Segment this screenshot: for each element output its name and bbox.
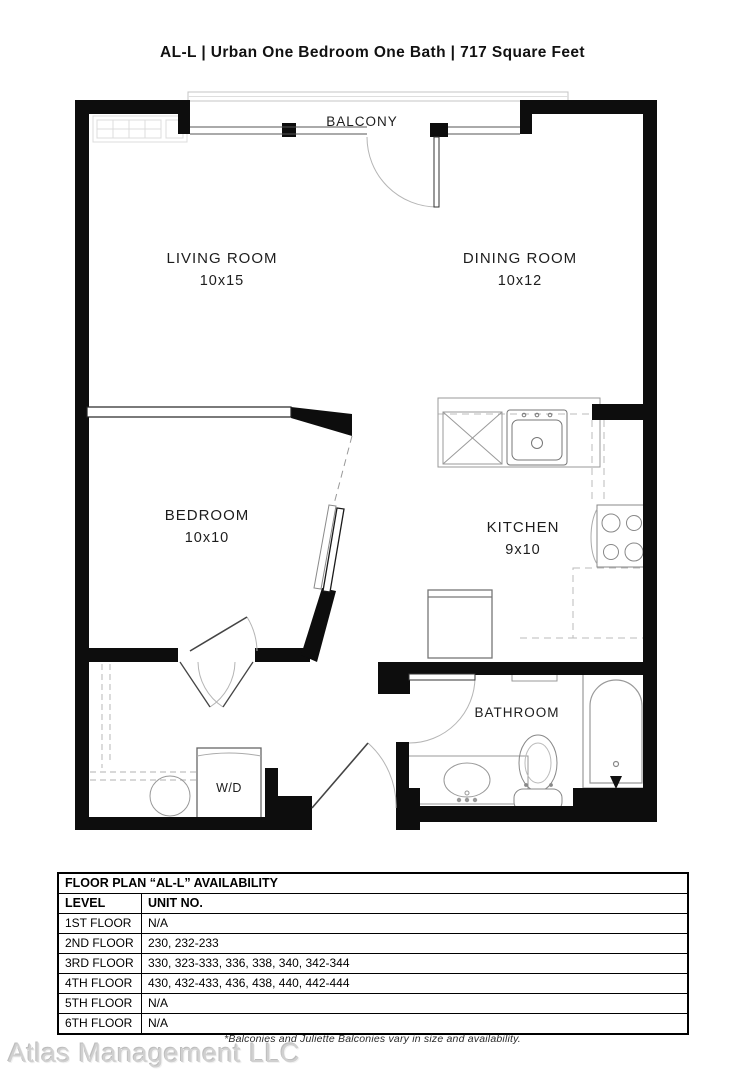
- stove: [591, 505, 645, 567]
- bathtub: [583, 670, 648, 789]
- table-header-row: LEVEL UNIT NO.: [58, 894, 688, 914]
- entry-door: [312, 743, 396, 808]
- bedroom-label: BEDROOM: [165, 507, 250, 524]
- table-title-row: FLOOR PLAN “AL-L” AVAILABILITY: [58, 873, 688, 894]
- col-header-level: LEVEL: [58, 894, 142, 914]
- kitchen-label: KITCHEN: [487, 519, 560, 536]
- refrigerator: [428, 590, 492, 658]
- bathroom-vanity: [408, 756, 528, 804]
- balcony-label: BALCONY: [326, 114, 398, 129]
- balcony-door: [367, 137, 439, 207]
- unit-cell: N/A: [142, 1014, 689, 1035]
- table-row: 2ND FLOOR 230, 232-233: [58, 934, 688, 954]
- toilet: [514, 735, 562, 811]
- floor-plan: W/D: [0, 85, 745, 845]
- floor-plan-flyer: AL-L | Urban One Bedroom One Bath | 717 …: [0, 0, 745, 1080]
- water-heater: [150, 776, 190, 816]
- unit-cell: 330, 323-333, 336, 338, 340, 342-344: [142, 954, 689, 974]
- unit-cell: N/A: [142, 914, 689, 934]
- corner-cabinet: [443, 412, 502, 464]
- bathroom-label: BATHROOM: [475, 705, 560, 720]
- level-cell: 2ND FLOOR: [58, 934, 142, 954]
- living-room-dims: 10x15: [200, 273, 245, 289]
- wd-label: W/D: [216, 781, 242, 795]
- page-title: AL-L | Urban One Bedroom One Bath | 717 …: [0, 44, 745, 62]
- level-cell: 4TH FLOOR: [58, 974, 142, 994]
- level-cell: 1ST FLOOR: [58, 914, 142, 934]
- unit-cell: 230, 232-233: [142, 934, 689, 954]
- availability-table: FLOOR PLAN “AL-L” AVAILABILITY LEVEL UNI…: [57, 872, 689, 1035]
- baseboard-grille: [93, 116, 187, 142]
- kitchen-counter: [438, 398, 600, 467]
- table-row: 4TH FLOOR 430, 432-433, 436, 438, 440, 4…: [58, 974, 688, 994]
- bathroom-door: [409, 674, 475, 743]
- table-row: 5TH FLOOR N/A: [58, 994, 688, 1014]
- level-cell: 3RD FLOOR: [58, 954, 142, 974]
- table-title: FLOOR PLAN “AL-L” AVAILABILITY: [58, 873, 688, 894]
- walls: [75, 100, 657, 830]
- unit-cell: N/A: [142, 994, 689, 1014]
- unit-cell: 430, 432-433, 436, 438, 440, 442-444: [142, 974, 689, 994]
- kitchen-sink: [507, 410, 567, 465]
- bedroom-wall-dashed: [334, 436, 352, 504]
- balcony-railing: [188, 92, 568, 101]
- table-row: 1ST FLOOR N/A: [58, 914, 688, 934]
- dining-room-dims: 10x12: [498, 273, 543, 289]
- washer-dryer: W/D: [197, 748, 261, 823]
- company-watermark: Atlas Management LLC: [8, 1038, 300, 1069]
- bedroom-sliding-door: [314, 505, 344, 592]
- table-row: 6TH FLOOR N/A: [58, 1014, 688, 1035]
- kitchen-dims: 9x10: [505, 542, 540, 558]
- half-wall-living-bedroom: [87, 407, 291, 417]
- dining-room-label: DINING ROOM: [463, 250, 577, 267]
- closet-double-doors: [180, 662, 253, 707]
- col-header-unit: UNIT NO.: [142, 894, 689, 914]
- bedroom-dims: 10x10: [185, 530, 230, 546]
- living-room-label: LIVING ROOM: [166, 250, 277, 267]
- level-cell: 6TH FLOOR: [58, 1014, 142, 1035]
- table-row: 3RD FLOOR 330, 323-333, 336, 338, 340, 3…: [58, 954, 688, 974]
- bedroom-door: [190, 617, 257, 651]
- level-cell: 5TH FLOOR: [58, 994, 142, 1014]
